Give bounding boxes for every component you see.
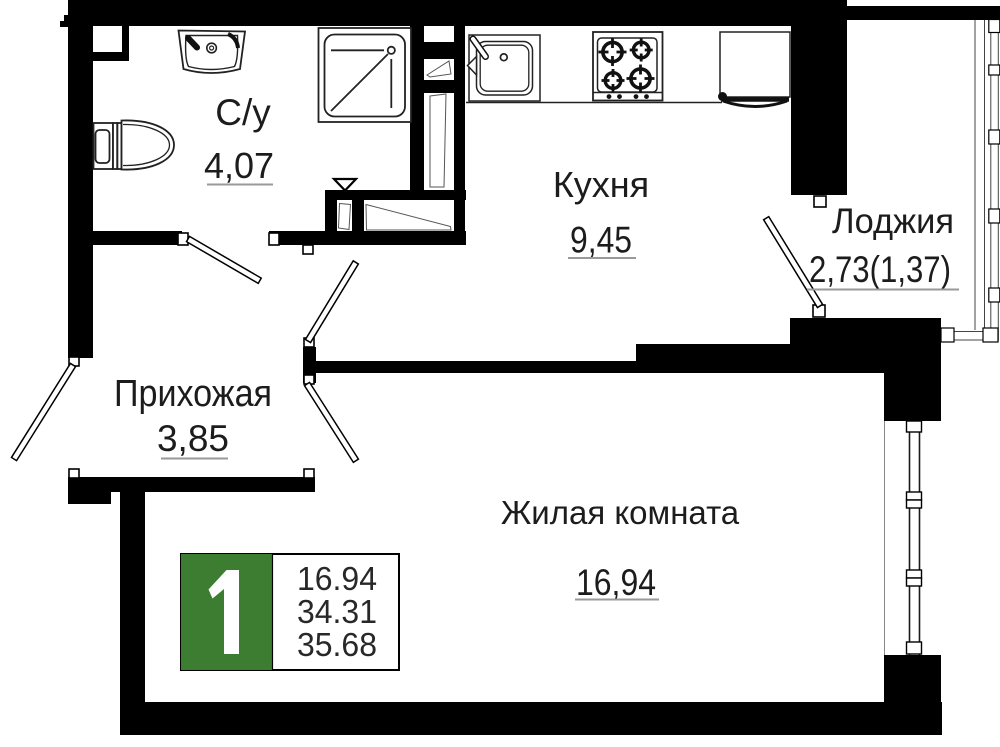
svg-text:С/у: С/у — [215, 92, 271, 133]
svg-text:4,07: 4,07 — [204, 145, 274, 186]
svg-text:9,45: 9,45 — [570, 220, 632, 261]
svg-text:16,94: 16,94 — [576, 562, 656, 603]
svg-text:Прихожая: Прихожая — [114, 373, 272, 415]
svg-text:2,73(1,37): 2,73(1,37) — [809, 249, 951, 290]
svg-text:Лоджия: Лоджия — [832, 202, 954, 241]
svg-text:Жилая комната: Жилая комната — [501, 494, 740, 531]
svg-text:16.94: 16.94 — [297, 560, 377, 597]
svg-text:Кухня: Кухня — [553, 164, 649, 205]
svg-text:35.68: 35.68 — [297, 626, 377, 663]
svg-text:34.31: 34.31 — [297, 593, 377, 630]
svg-text:3,85: 3,85 — [157, 418, 229, 459]
